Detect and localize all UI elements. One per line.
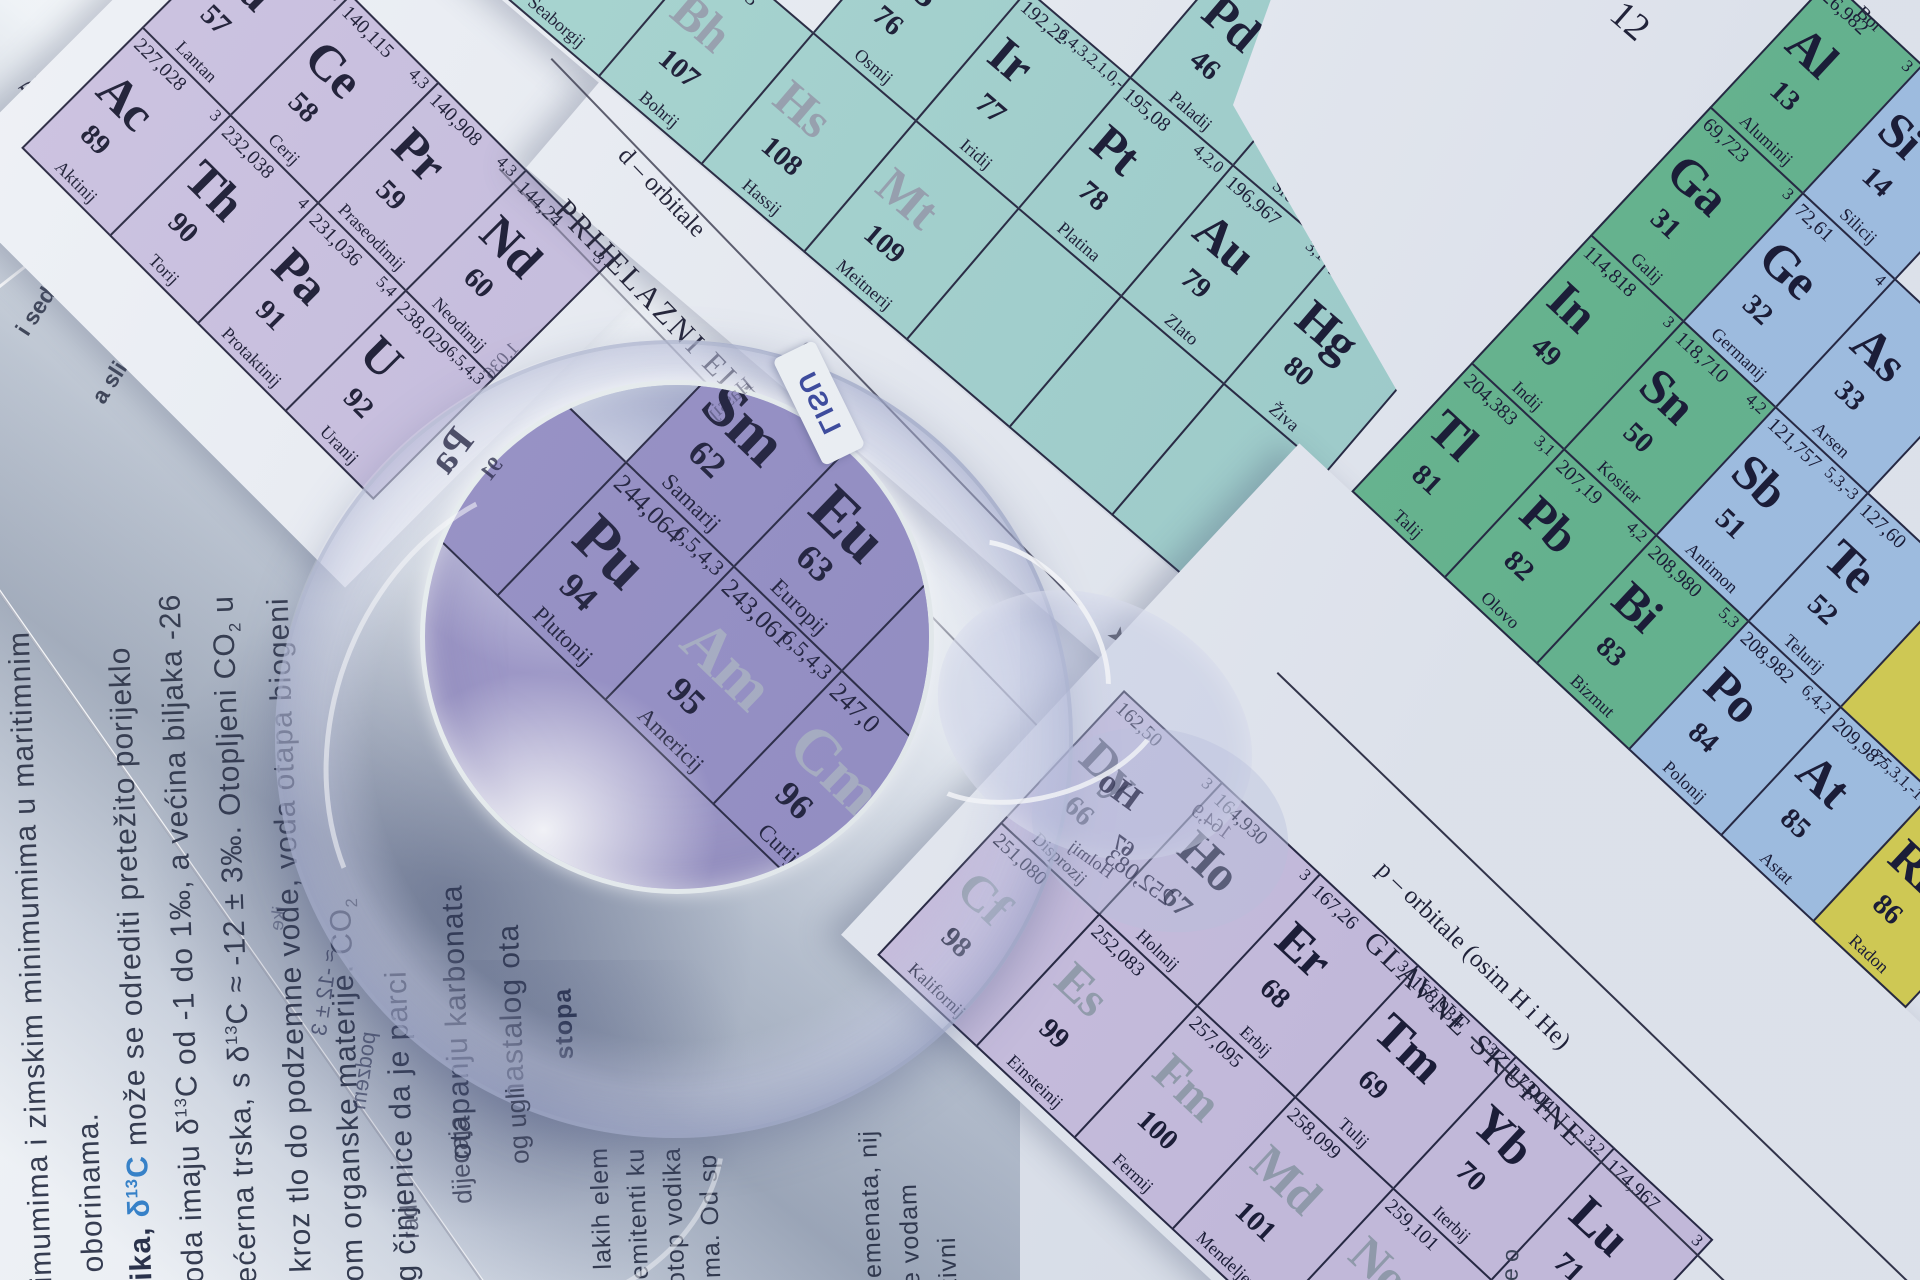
text-segment: δ <box>122 1198 156 1218</box>
cell-num: 32 <box>1736 288 1780 332</box>
document-text-line: se vodam <box>894 1183 927 1280</box>
cell-num: 81 <box>1405 458 1449 502</box>
through-glass-radi: radi <box>395 1198 426 1240</box>
cell-sym: Ir <box>977 25 1045 95</box>
text-segment: ktivni <box>933 1236 963 1280</box>
text-segment: šećerna trska, s δ <box>222 1044 264 1280</box>
cell-num: 85 <box>1774 802 1818 846</box>
cell-num: 51 <box>1709 502 1753 546</box>
cell-num: 49 <box>1524 330 1568 374</box>
document-text-line: n oborinama. <box>71 1112 112 1280</box>
text-segment: 2 <box>226 621 244 632</box>
cell-num: 68 <box>1253 972 1297 1016</box>
text-segment: se vodam <box>894 1183 926 1280</box>
refl-ike: ike <box>267 905 292 932</box>
cell-num: 52 <box>1801 588 1845 632</box>
cell-num: 50 <box>1616 416 1660 460</box>
text-segment: 13 <box>172 1097 191 1118</box>
fragment-se-o: se o <box>1496 1249 1525 1280</box>
text-segment: u <box>206 595 240 623</box>
text-segment: ljika, <box>123 1217 159 1280</box>
cell-num: 84 <box>1681 716 1725 760</box>
text-segment: n oborinama. <box>71 1112 111 1280</box>
cell-num: 82 <box>1497 544 1541 588</box>
text-segment: 13 <box>123 1178 142 1199</box>
cell-num: 71 <box>1547 1246 1591 1280</box>
cell-num: 31 <box>1644 202 1688 246</box>
document-text-line: ktivni <box>933 1236 964 1280</box>
cell-num: 70 <box>1449 1155 1493 1199</box>
cell-num: 83 <box>1589 630 1633 674</box>
cell-num: 69 <box>1351 1064 1395 1108</box>
text-segment: voda imaju δ <box>172 1117 211 1280</box>
cell-num: 13 <box>1763 74 1807 118</box>
text-segment: 13 <box>222 1024 241 1045</box>
text-segment: C <box>121 1155 155 1179</box>
cell-num: 33 <box>1828 374 1872 418</box>
cell-num: 86 <box>1866 888 1910 932</box>
text-segment: elemenata, nij <box>854 1129 888 1280</box>
document-text-line: elemenata, nij <box>854 1129 889 1280</box>
photo-periodic-table-flask: DI → i sedime a sli se o šimumima i zims… <box>0 0 1920 1280</box>
cell-num: 106 <box>549 0 604 8</box>
cell-num: 14 <box>1855 160 1899 204</box>
cell-num: 99 <box>1032 1013 1076 1057</box>
